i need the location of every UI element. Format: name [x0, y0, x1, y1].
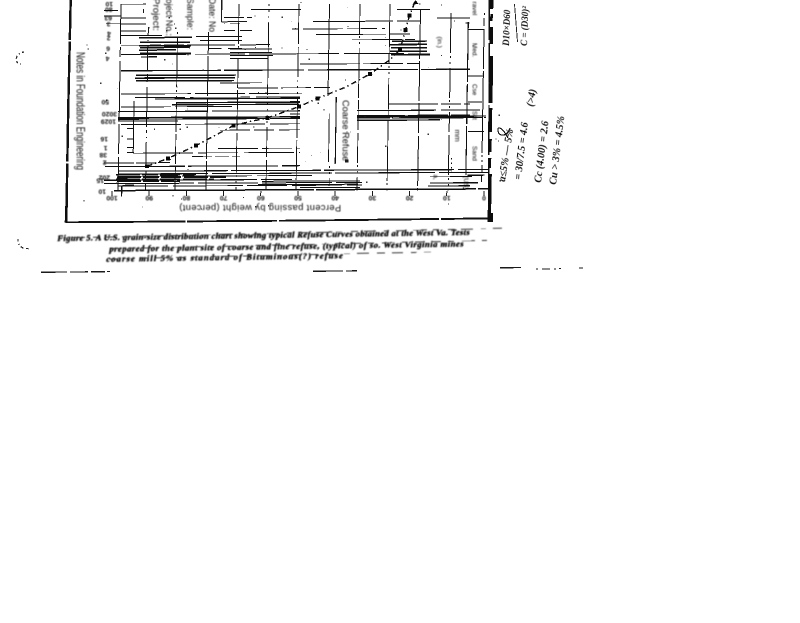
- svg-text:Med.: Med.: [471, 43, 478, 57]
- svg-text:(in.): (in.): [436, 37, 443, 48]
- svg-text:mm: mm: [453, 130, 462, 142]
- svg-text:90: 90: [145, 194, 153, 201]
- svg-text:16: 16: [100, 135, 108, 142]
- svg-text:a,: a,: [432, 175, 439, 181]
- svg-text:80: 80: [105, 5, 113, 12]
- svg-text:Notes in Foundation Engineerin: Notes in Foundation Engineering: [74, 52, 88, 170]
- svg-text:38: 38: [99, 151, 107, 158]
- svg-text:40: 40: [331, 194, 339, 201]
- svg-text:C = (D30)²: C = (D30)²: [519, 6, 530, 46]
- svg-text:2: 2: [107, 34, 111, 41]
- svg-text:80: 80: [182, 194, 190, 201]
- svg-text:Sand: Sand: [471, 146, 478, 161]
- svg-text:70: 70: [220, 194, 228, 201]
- svg-text:Project:: Project:: [151, 0, 161, 31]
- svg-text:6: 6: [106, 45, 110, 52]
- svg-text:2: 2: [103, 159, 107, 166]
- svg-text:30: 30: [368, 194, 376, 201]
- svg-text:Percent passing by weight (per: Percent passing by weight (percent): [179, 203, 341, 213]
- svg-text:Silt: Silt: [471, 111, 478, 120]
- svg-text:63: 63: [104, 14, 112, 21]
- svg-text:Cse: Cse: [471, 84, 478, 96]
- svg-text:20: 20: [406, 194, 414, 201]
- svg-text:3: 3: [107, 20, 111, 27]
- svg-text:3020: 3020: [102, 110, 117, 117]
- svg-text:60: 60: [257, 194, 265, 201]
- svg-text:10: 10: [443, 194, 451, 201]
- svg-text:50: 50: [101, 98, 109, 105]
- svg-text:Sample:: Sample:: [185, 0, 195, 30]
- svg-text:10: 10: [98, 188, 106, 195]
- svg-text:D10×D60: D10×D60: [501, 9, 512, 47]
- svg-text:ravel: ravel: [471, 2, 478, 16]
- svg-text:Coarse Refuse: Coarse Refuse: [341, 100, 351, 161]
- svg-text:15: 15: [96, 177, 104, 184]
- svg-text:0: 0: [482, 194, 486, 201]
- svg-text:50: 50: [294, 194, 302, 201]
- svg-text:1029: 1029: [101, 118, 116, 125]
- svg-text:4: 4: [106, 55, 110, 62]
- svg-text:100: 100: [106, 194, 118, 201]
- svg-text:1: 1: [104, 144, 108, 151]
- svg-text:Date: No: Date: No: [207, 0, 217, 32]
